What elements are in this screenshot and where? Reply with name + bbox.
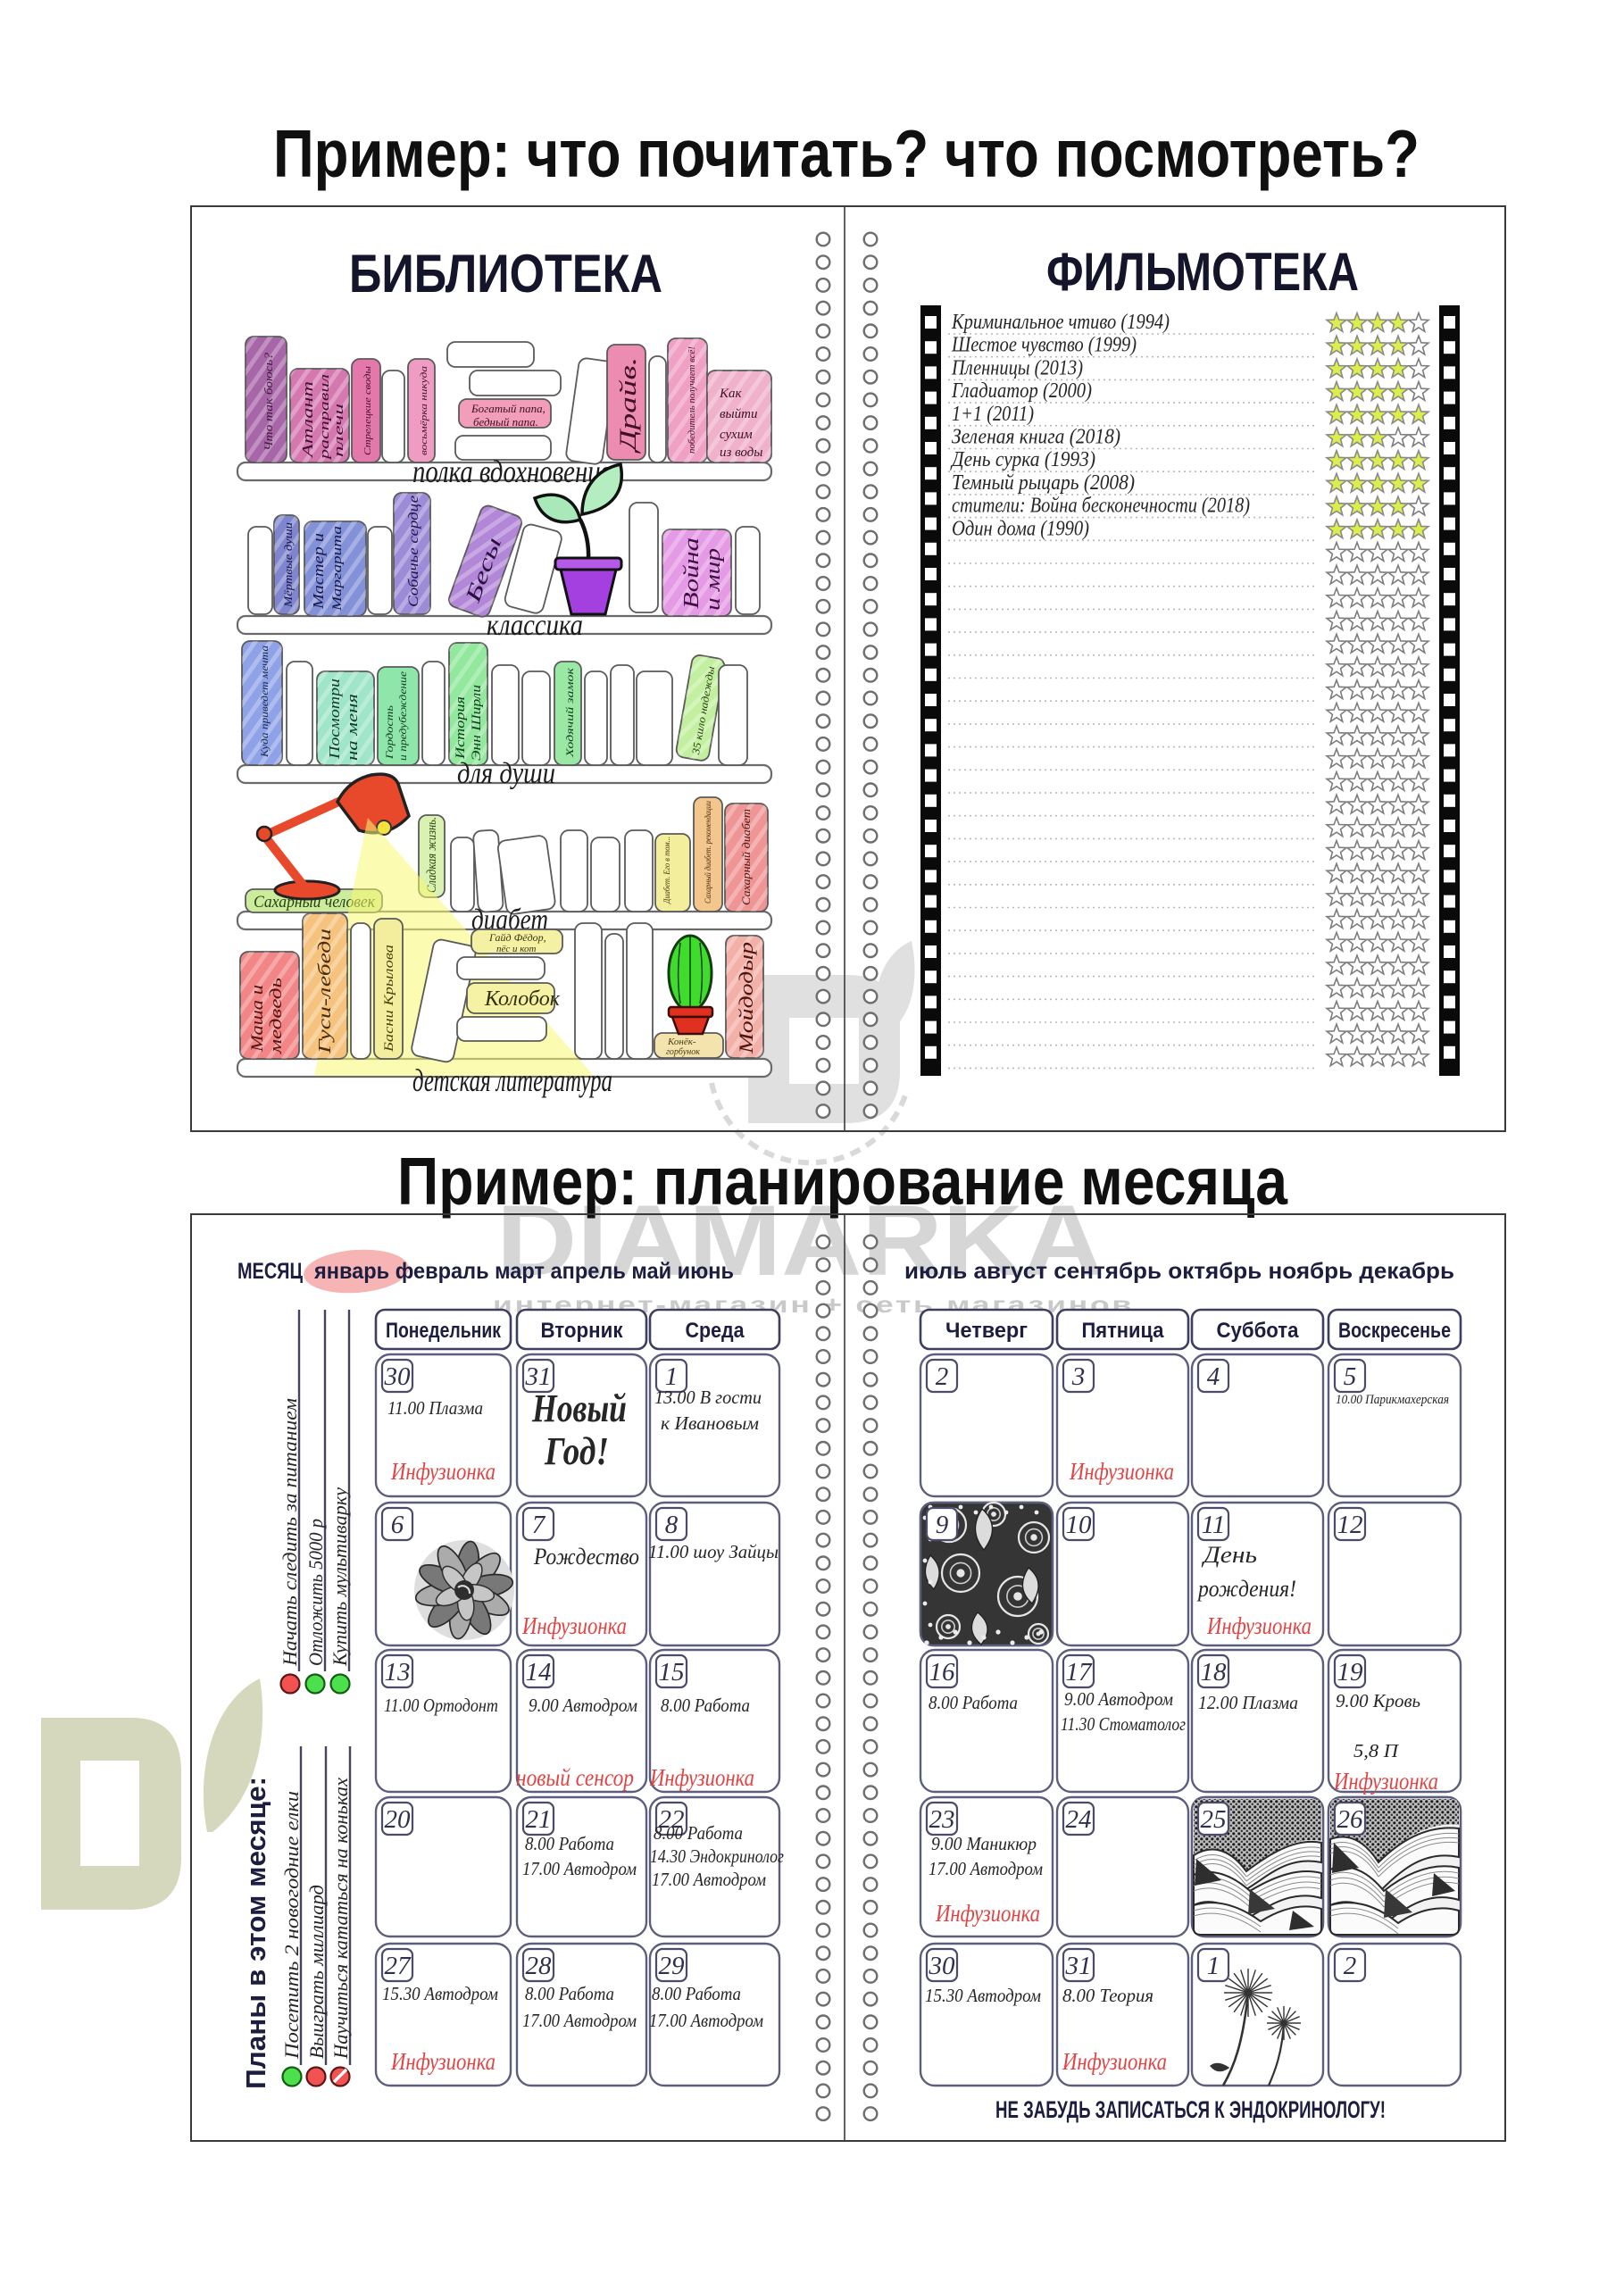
svg-text:Драйв.: Драйв. xyxy=(615,357,641,454)
svg-text:Инфузионка: Инфузионка xyxy=(1069,1458,1174,1485)
svg-text:полка вдохновения: полка вдохновения xyxy=(412,454,612,489)
svg-text:на меня: на меня xyxy=(344,694,361,761)
svg-text:Воскресенье: Воскресенье xyxy=(1338,1319,1451,1343)
svg-text:5: 5 xyxy=(1344,1362,1357,1391)
svg-text:для души: для души xyxy=(457,757,555,790)
svg-text:10.00 Парикмахерская: 10.00 Парикмахерская xyxy=(1336,1393,1449,1407)
svg-text:Планы в этом месяце:: Планы в этом месяце: xyxy=(240,1777,271,2089)
svg-text:1: 1 xyxy=(1207,1952,1220,1980)
svg-text:Пример: планирование месяца: Пример: планирование месяца xyxy=(397,1144,1288,1219)
svg-text:27: 27 xyxy=(385,1952,412,1980)
svg-text:8.00 Теория: 8.00 Теория xyxy=(1062,1985,1153,2006)
svg-text:июль август сентябрь октябрь н: июль август сентябрь октябрь ноябрь дека… xyxy=(904,1259,1454,1284)
svg-text:Басни Крылова: Басни Крылова xyxy=(382,945,396,1053)
svg-text:8.00 Работа: 8.00 Работа xyxy=(654,1822,743,1844)
svg-text:8.00 Работа: 8.00 Работа xyxy=(525,1983,614,2004)
svg-text:Что так боюсь?: Что так боюсь? xyxy=(262,352,275,451)
svg-text:Начать следить за питанием: Начать следить за питанием xyxy=(279,1398,301,1667)
svg-text:14.30 Эндокринолог: 14.30 Эндокринолог xyxy=(650,1845,784,1867)
svg-text:Купить мультиварку: Купить мультиварку xyxy=(329,1487,351,1667)
svg-text:БИБЛИОТЕКА: БИБЛИОТЕКА xyxy=(349,244,662,304)
svg-text:Инфузионка: Инфузионка xyxy=(649,1764,754,1791)
svg-text:17.00 Автодром: 17.00 Автодром xyxy=(522,2010,637,2031)
svg-text:МЕСЯЦ: МЕСЯЦ xyxy=(237,1259,304,1284)
svg-text:Мастер и: Мастер и xyxy=(310,533,327,610)
svg-text:21: 21 xyxy=(526,1805,552,1834)
svg-text:Среда: Среда xyxy=(686,1319,745,1343)
svg-text:Инфузионка: Инфузионка xyxy=(1062,2048,1167,2075)
svg-text:Инфузионка: Инфузионка xyxy=(1206,1612,1312,1639)
svg-text:9.00 Маникюр: 9.00 Маникюр xyxy=(931,1833,1037,1854)
svg-text:9: 9 xyxy=(936,1511,949,1539)
svg-text:17.00 Автодром: 17.00 Автодром xyxy=(522,1858,637,1879)
svg-text:Рождество: Рождество xyxy=(533,1544,639,1570)
svg-text:Инфузионка: Инфузионка xyxy=(1333,1768,1438,1795)
svg-text:Богатый папа,: Богатый папа, xyxy=(471,402,545,415)
svg-text:Энн Ширли: Энн Ширли xyxy=(470,685,484,761)
svg-text:18: 18 xyxy=(1201,1658,1228,1687)
svg-text:10: 10 xyxy=(1066,1511,1093,1539)
svg-text:Посмотри: Посмотри xyxy=(326,679,343,760)
svg-text:Гладиатор (2000): Гладиатор (2000) xyxy=(951,379,1092,403)
svg-text:Конёк-: Конёк- xyxy=(667,1037,696,1047)
svg-text:Гордость: Гордость xyxy=(383,704,396,760)
svg-text:Пример: что почитать? что посм: Пример: что почитать? что посмотреть? xyxy=(273,116,1420,191)
svg-text:Выиграть миллиард: Выиграть миллиард xyxy=(305,1885,328,2059)
svg-text:9.00 Автодром: 9.00 Автодром xyxy=(529,1695,637,1716)
svg-text:Мойдодыр: Мойдодыр xyxy=(735,942,757,1054)
svg-text:Научиться кататься на коньках: Научиться кататься на коньках xyxy=(329,1778,352,2060)
svg-text:31: 31 xyxy=(1065,1952,1092,1980)
svg-text:Сахарный диабет. рекомендации: Сахарный диабет. рекомендации xyxy=(704,801,712,904)
svg-text:15.30 Автодром: 15.30 Автодром xyxy=(925,1985,1041,2006)
svg-text:30: 30 xyxy=(384,1362,412,1391)
svg-text:Атлант: Атлант xyxy=(299,381,316,458)
svg-text:детская литература: детская литература xyxy=(412,1062,612,1098)
svg-text:Инфузионка: Инфузионка xyxy=(390,1458,496,1485)
svg-text:Понедельник: Понедельник xyxy=(386,1319,502,1343)
svg-text:17: 17 xyxy=(1066,1658,1094,1687)
svg-text:расправил: расправил xyxy=(318,373,332,460)
svg-text:Инфузионка: Инфузионка xyxy=(390,2048,496,2075)
svg-text:23: 23 xyxy=(929,1805,955,1834)
svg-text:19: 19 xyxy=(1337,1658,1364,1687)
svg-text:8.00 Работа: 8.00 Работа xyxy=(661,1695,750,1716)
svg-text:Гуси-лебеди: Гуси-лебеди xyxy=(315,929,335,1054)
svg-text:24: 24 xyxy=(1066,1805,1092,1834)
svg-text:7: 7 xyxy=(532,1511,546,1539)
svg-text:плечи: плечи xyxy=(332,404,346,457)
svg-text:17.00 Автодром: 17.00 Автодром xyxy=(652,1869,766,1890)
svg-text:2: 2 xyxy=(936,1362,949,1391)
svg-text:8.00 Работа: 8.00 Работа xyxy=(652,1983,741,2004)
svg-text:Пленницы (2013): Пленницы (2013) xyxy=(951,356,1083,379)
svg-text:Гайд Фёдор,: Гайд Фёдор, xyxy=(488,931,546,944)
svg-text:9.00 Автодром: 9.00 Автодром xyxy=(1064,1688,1173,1710)
svg-text:4: 4 xyxy=(1207,1362,1220,1391)
svg-text:стители: Война бесконечности (: стители: Война бесконечности (2018) xyxy=(952,495,1250,518)
svg-text:17.00 Автодром: 17.00 Автодром xyxy=(649,2010,763,2031)
svg-text:11.00 Плазма: 11.00 Плазма xyxy=(387,1397,483,1419)
svg-text:Ходячий замок: Ходячий замок xyxy=(563,667,576,758)
svg-text:Суббота: Суббота xyxy=(1217,1319,1300,1343)
svg-text:Инфузионка: Инфузионка xyxy=(935,1900,1040,1927)
svg-text:Зеленая книга (2018): Зеленая книга (2018) xyxy=(952,426,1120,449)
svg-text:Темный рыцарь (2008): Темный рыцарь (2008) xyxy=(952,471,1135,495)
svg-text:5,8 П: 5,8 П xyxy=(1353,1740,1400,1761)
svg-text:бедный папа.: бедный папа. xyxy=(473,415,538,429)
svg-text:Маргарита: Маргарита xyxy=(330,526,345,612)
svg-text:3: 3 xyxy=(1071,1362,1086,1391)
svg-text:январь февраль март апрель май: январь февраль март апрель май июнь xyxy=(313,1259,734,1284)
svg-text:Год!: Год! xyxy=(544,1429,609,1473)
svg-text:новый сенсор: новый сенсор xyxy=(516,1764,634,1791)
svg-text:11.30 Стоматолог: 11.30 Стоматолог xyxy=(1061,1713,1186,1735)
svg-text:29: 29 xyxy=(659,1952,686,1980)
svg-text:Война: Война xyxy=(680,537,704,609)
svg-text:ФИЛЬМОТЕКА: ФИЛЬМОТЕКА xyxy=(1046,242,1359,302)
svg-text:восьмёрка никуда: восьмёрка никуда xyxy=(419,365,429,455)
svg-text:20: 20 xyxy=(385,1805,412,1834)
svg-text:17.00 Автодром: 17.00 Автодром xyxy=(929,1858,1043,1879)
svg-text:рождения!: рождения! xyxy=(1196,1576,1296,1602)
svg-text:8.00 Работа: 8.00 Работа xyxy=(929,1692,1018,1713)
svg-text:Инфузионка: Инфузионка xyxy=(521,1612,627,1639)
svg-text:классика: классика xyxy=(487,609,583,642)
svg-text:горбунок: горбунок xyxy=(666,1047,700,1057)
svg-text:сухим: сухим xyxy=(720,428,753,442)
svg-text:16: 16 xyxy=(929,1658,956,1687)
svg-text:13.00 В гости: 13.00 В гости xyxy=(654,1387,762,1408)
svg-text:Куда приведет мечта: Куда приведет мечта xyxy=(258,645,271,758)
svg-text:Вторник: Вторник xyxy=(541,1319,624,1343)
svg-text:Колобок: Колобок xyxy=(484,987,561,1011)
svg-text:6: 6 xyxy=(391,1511,404,1539)
svg-text:медведь: медведь xyxy=(267,978,286,1055)
svg-text:выйти: выйти xyxy=(720,407,758,421)
svg-text:Мёртвые души: Мёртвые души xyxy=(281,521,295,608)
svg-text:12.00 Плазма: 12.00 Плазма xyxy=(1198,1692,1298,1713)
svg-text:из воды: из воды xyxy=(720,446,762,460)
svg-text:11.00 шоу Зайцы: 11.00 шоу Зайцы xyxy=(648,1541,779,1562)
svg-text:25: 25 xyxy=(1201,1805,1227,1834)
svg-text:и предубеждение: и предубеждение xyxy=(396,670,409,761)
svg-text:14: 14 xyxy=(526,1658,552,1687)
svg-text:День: День xyxy=(1201,1542,1258,1568)
svg-text:12: 12 xyxy=(1337,1511,1363,1539)
svg-text:28: 28 xyxy=(526,1952,553,1980)
svg-text:Стрелецкие своды: Стрелецкие своды xyxy=(362,365,373,455)
svg-text:НЕ ЗАБУДЬ ЗАПИСАТЬСЯ К ЭНДОКРИ: НЕ ЗАБУДЬ ЗАПИСАТЬСЯ К ЭНДОКРИНОЛОГУ! xyxy=(995,2096,1386,2123)
svg-text:11.00 Ортодонт: 11.00 Ортодонт xyxy=(384,1695,498,1716)
svg-text:Один дома (1990): Один дома (1990) xyxy=(952,517,1089,540)
svg-text:Диабет. Его в том...: Диабет. Его в том... xyxy=(662,837,671,904)
svg-text:13: 13 xyxy=(385,1658,411,1687)
svg-text:2: 2 xyxy=(1344,1952,1357,1980)
svg-text:15.30 Автодром: 15.30 Автодром xyxy=(382,1983,498,2004)
svg-text:пёс и кот: пёс и кот xyxy=(496,944,536,954)
svg-text:11: 11 xyxy=(1202,1511,1226,1539)
svg-text:Четверг: Четверг xyxy=(945,1319,1028,1343)
svg-text:победитель получает всё!: победитель получает всё! xyxy=(687,346,697,454)
svg-text:Собачье сердце: Собачье сердце xyxy=(406,496,421,607)
svg-text:Отложить 5000 р: Отложить 5000 р xyxy=(304,1519,327,1666)
svg-text:9.00 Кровь: 9.00 Кровь xyxy=(1336,1690,1420,1711)
svg-text:и мир: и мир xyxy=(702,548,725,611)
svg-text:Сладкая жизнь.: Сладкая жизнь. xyxy=(425,817,439,893)
svg-text:Маша и: Маша и xyxy=(248,985,267,1053)
svg-text:История: История xyxy=(454,696,468,760)
svg-text:30: 30 xyxy=(929,1952,956,1980)
svg-text:Сахарный диабет: Сахарный диабет xyxy=(739,809,753,905)
svg-text:26: 26 xyxy=(1337,1805,1364,1834)
svg-text:Как: Как xyxy=(719,387,742,401)
svg-text:Криминальное чтиво (1994): Криминальное чтиво (1994) xyxy=(951,311,1170,334)
svg-text:Новый: Новый xyxy=(531,1387,627,1430)
svg-text:к Ивановым: к Ивановым xyxy=(661,1412,759,1434)
svg-text:8: 8 xyxy=(665,1511,679,1539)
svg-text:1+1 (2011): 1+1 (2011) xyxy=(952,403,1034,426)
svg-text:Шестое чувство (1999): Шестое чувство (1999) xyxy=(951,334,1137,357)
svg-text:8.00 Работа: 8.00 Работа xyxy=(525,1833,614,1854)
svg-text:15: 15 xyxy=(659,1658,685,1687)
svg-text:День сурка (1993): День сурка (1993) xyxy=(950,448,1095,471)
svg-text:Пятница: Пятница xyxy=(1082,1319,1165,1343)
svg-text:Посетить 2 новогодние елки: Посетить 2 новогодние елки xyxy=(280,1791,303,2060)
